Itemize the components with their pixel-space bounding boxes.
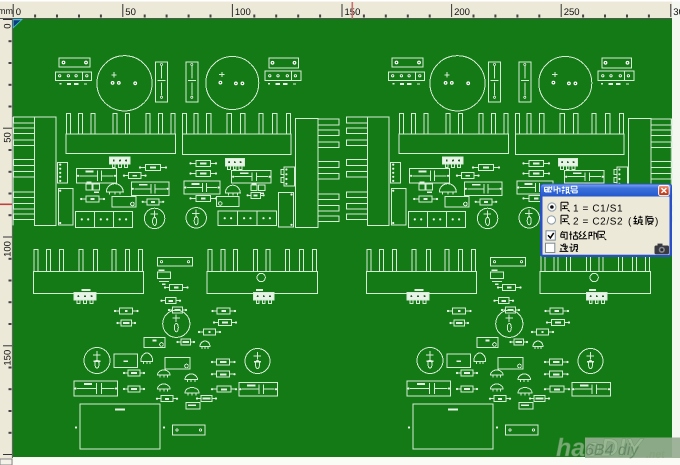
svg-text:.net: .net — [646, 449, 665, 461]
svg-text:200: 200 — [454, 7, 470, 18]
svg-text:0: 0 — [16, 7, 21, 18]
svg-text:100: 100 — [3, 241, 14, 257]
svg-text:100: 100 — [235, 7, 251, 18]
svg-text:50: 50 — [3, 132, 14, 143]
svg-text:mm: mm — [0, 6, 13, 16]
svg-text:): ) — [655, 217, 658, 228]
svg-text:150: 150 — [3, 350, 14, 366]
svg-text:1 = C1/S1: 1 = C1/S1 — [573, 204, 623, 215]
svg-text:250: 250 — [564, 7, 580, 18]
svg-text:50: 50 — [125, 7, 136, 18]
svg-text:6B4 diy: 6B4 diy — [585, 442, 639, 459]
svg-text:300: 300 — [673, 7, 680, 18]
svg-text:0: 0 — [3, 24, 14, 29]
svg-text:2 = C2/S2: 2 = C2/S2 — [573, 217, 623, 228]
